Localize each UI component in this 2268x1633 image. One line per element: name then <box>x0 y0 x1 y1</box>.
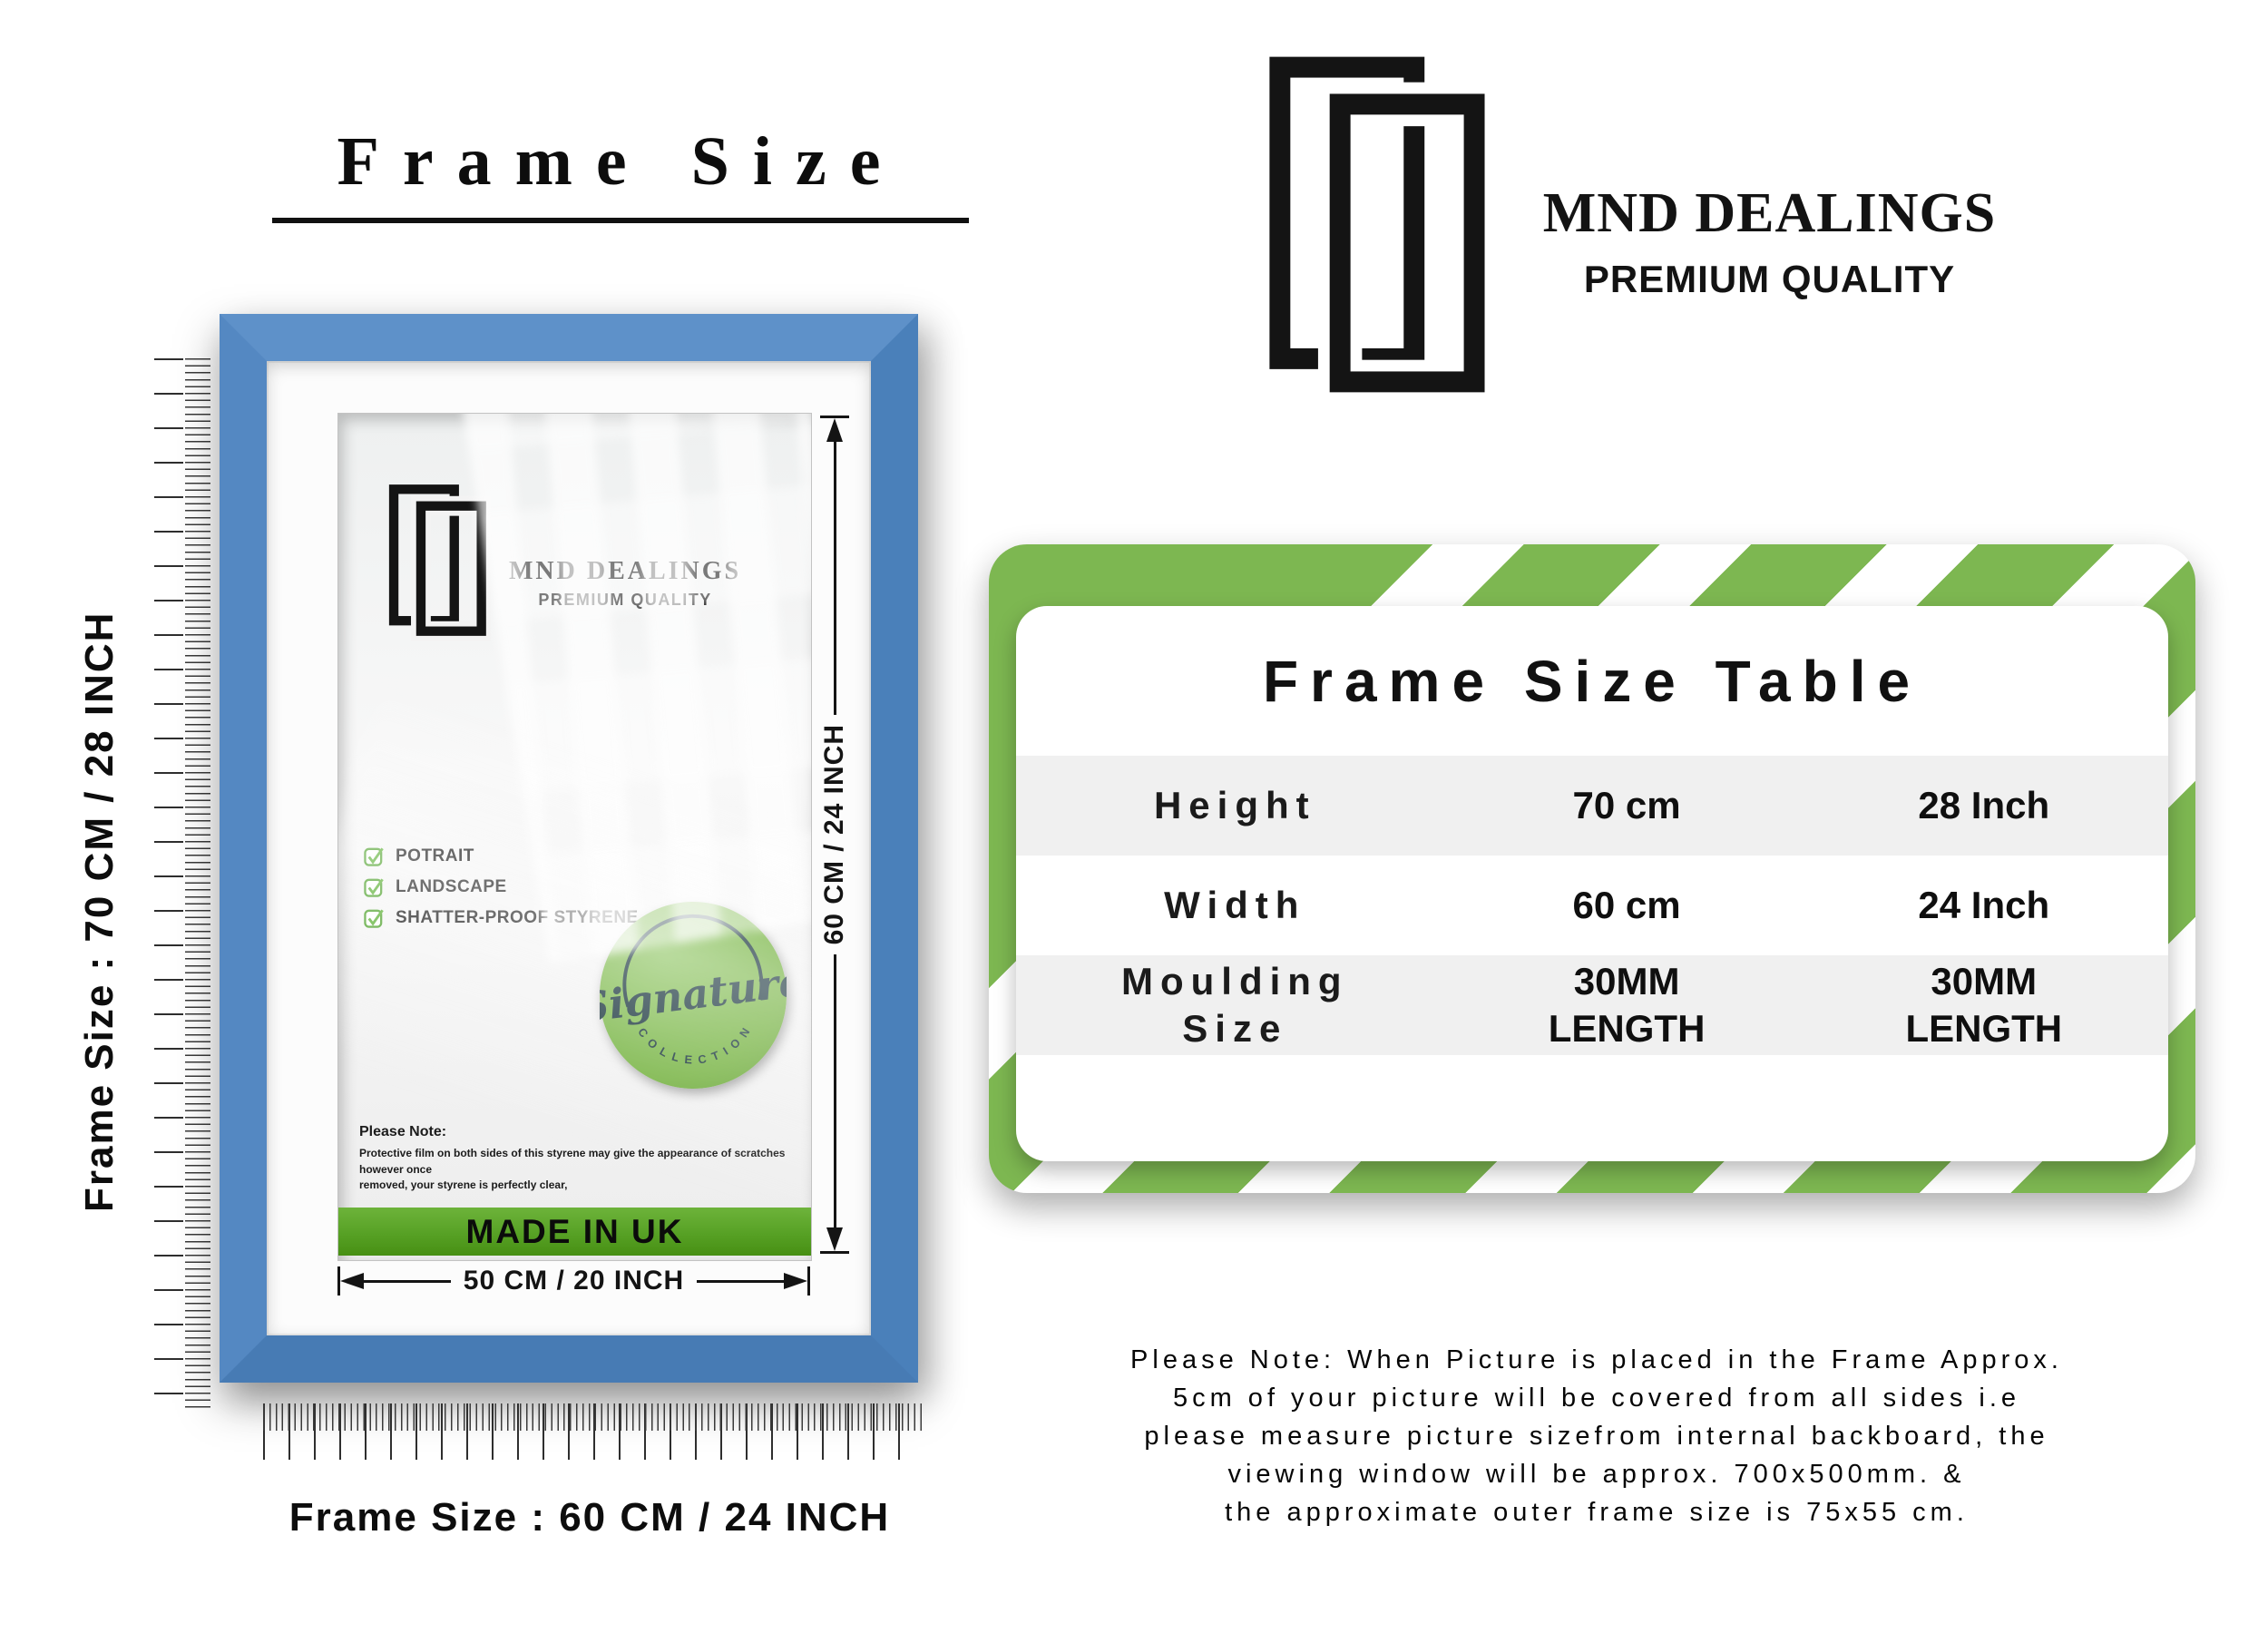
width-dimension: 50 CM / 20 INCH <box>337 1265 810 1297</box>
styrene-note-line: removed, your styrene is perfectly clear… <box>359 1178 807 1194</box>
double-frame-icon <box>386 477 491 643</box>
ruler-minor-ticks <box>185 358 210 1411</box>
width-dimension-label: 50 CM / 20 INCH <box>451 1266 697 1296</box>
note-line: the approximate outer frame size is 75x5… <box>1002 1493 2191 1531</box>
frame-window: MND DEALINGS PREMIUM QUALITY POTRAIT <box>337 413 812 1261</box>
header-brand-name: MND DEALINGS <box>1504 181 2035 246</box>
note-line: please measure picture sizefrom internal… <box>1002 1417 2191 1455</box>
frame-width-label: Frame Size : 60 CM / 24 INCH <box>245 1495 934 1540</box>
horizontal-ruler-icon <box>263 1403 922 1467</box>
feature-item: POTRAIT <box>364 846 639 866</box>
picture-frame: MND DEALINGS PREMIUM QUALITY POTRAIT <box>220 314 918 1383</box>
page-title: Frame Size <box>272 122 969 223</box>
dimension-endcap <box>807 1266 810 1296</box>
brand-tagline: PREMIUM QUALITY <box>509 591 741 610</box>
table-row: Width 60 cm 24 Inch <box>1016 856 2168 955</box>
row-label: Height <box>1016 782 1454 830</box>
arrow-left-icon <box>340 1273 364 1289</box>
dimension-line <box>834 442 836 715</box>
arrow-down-icon <box>826 1227 843 1251</box>
ruler-minor-ticks <box>263 1403 922 1431</box>
signature-badge: Signature C O L L E C T I O N <box>600 902 787 1089</box>
feature-label: LANDSCAPE <box>396 877 507 897</box>
row-inch-value: 30MM LENGTH <box>1800 958 2168 1053</box>
dimension-endcap <box>820 1251 849 1254</box>
checkbox-check-icon <box>364 907 385 928</box>
frame-height-label: Frame Size : 70 CM / 28 INCH <box>64 390 136 1433</box>
frame-mat: MND DEALINGS PREMIUM QUALITY POTRAIT <box>267 361 871 1335</box>
svg-text:C O L L E C T I O N: C O L L E C T I O N <box>635 1024 753 1067</box>
dimension-line <box>697 1280 784 1283</box>
height-dimension-label: 60 CM / 24 INCH <box>819 724 850 944</box>
feature-label: POTRAIT <box>396 846 474 866</box>
row-cm-value: 70 cm <box>1454 782 1800 830</box>
brand-logo-text: MND DEALINGS PREMIUM QUALITY <box>509 557 741 643</box>
frame-infographic: Frame Size Frame Size : 70 CM / 28 INCH … <box>0 0 2268 1633</box>
dimension-line <box>364 1280 451 1283</box>
styrene-note-line: Protective film on both sides of this st… <box>359 1146 807 1178</box>
size-table: Height 70 cm 28 Inch Width 60 cm 24 Inch… <box>1016 756 2168 1055</box>
signature-badge-icon: Signature C O L L E C T I O N <box>600 902 787 1089</box>
made-in-uk-banner: MADE IN UK <box>338 1208 811 1256</box>
dimension-line <box>834 954 836 1227</box>
frame-size-panel: Frame Size Table Height 70 cm 28 Inch Wi… <box>989 544 2195 1193</box>
header-logo <box>1264 50 1495 399</box>
styrene-note-heading: Please Note: <box>359 1124 807 1140</box>
badge-arc-text: C O L L E C T I O N <box>635 1024 753 1067</box>
feature-item: LANDSCAPE <box>364 876 639 897</box>
row-label: Moulding Size <box>1016 958 1454 1053</box>
table-title: Frame Size Table <box>1016 648 2168 715</box>
row-cm-value: 60 cm <box>1454 882 1800 930</box>
arrow-right-icon <box>784 1273 807 1289</box>
checkbox-check-icon <box>364 846 385 866</box>
header-brand-tagline: PREMIUM QUALITY <box>1504 258 2035 301</box>
row-inch-value: 28 Inch <box>1800 782 2168 830</box>
double-frame-icon <box>1264 50 1495 399</box>
frame-size-card: Frame Size Table Height 70 cm 28 Inch Wi… <box>1016 606 2168 1161</box>
styrene-note: Please Note: Protective film on both sid… <box>359 1124 807 1194</box>
ruler-major-ticks <box>154 358 183 1411</box>
height-dimension: 60 CM / 24 INCH <box>815 416 855 1254</box>
note-line: Please Note: When Picture is placed in t… <box>1002 1341 2191 1379</box>
table-row: Moulding Size 30MM LENGTH 30MM LENGTH <box>1016 955 2168 1055</box>
row-label: Width <box>1016 882 1454 930</box>
row-cm-value: 30MM LENGTH <box>1454 958 1800 1053</box>
table-row: Height 70 cm 28 Inch <box>1016 756 2168 856</box>
vertical-ruler-icon <box>154 358 210 1411</box>
row-inch-value: 24 Inch <box>1800 882 2168 930</box>
bottom-note: Please Note: When Picture is placed in t… <box>1002 1341 2191 1531</box>
arrow-up-icon <box>826 418 843 442</box>
brand-name: MND DEALINGS <box>509 557 741 586</box>
checkbox-check-icon <box>364 876 385 897</box>
feature-list: POTRAIT LANDSCAPE SH <box>364 846 639 938</box>
brand-logo: MND DEALINGS PREMIUM QUALITY <box>386 477 741 643</box>
note-line: 5cm of your picture will be covered from… <box>1002 1379 2191 1417</box>
note-line: viewing window will be approx. 700x500mm… <box>1002 1455 2191 1493</box>
feature-item: SHATTER-PROOF STYRENE <box>364 907 639 928</box>
